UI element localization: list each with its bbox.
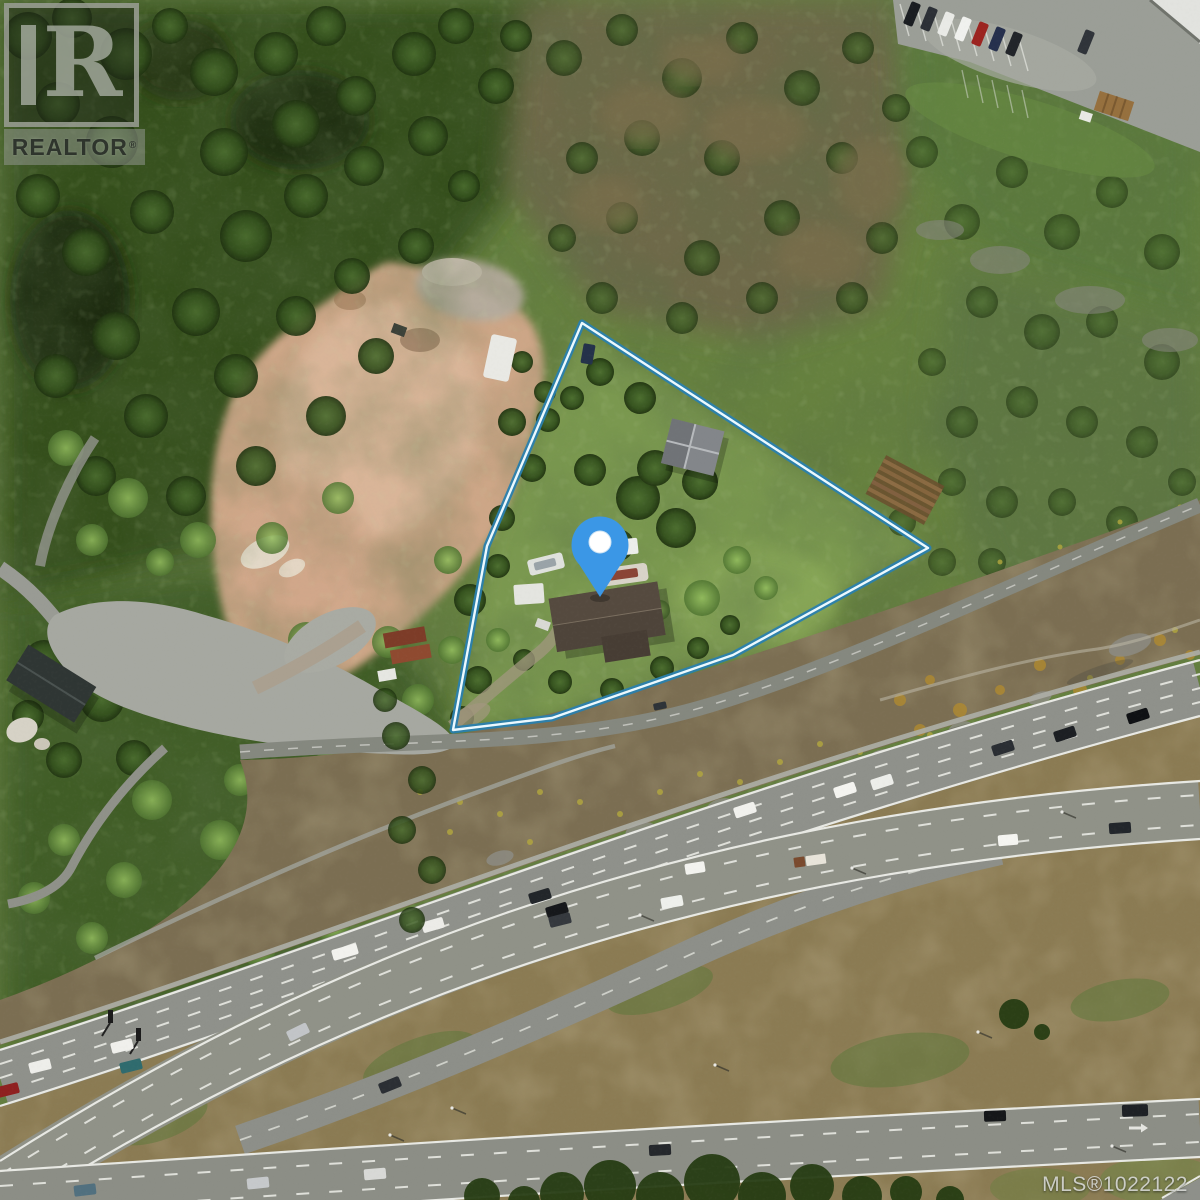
- registered-trademark-symbol: ®: [129, 140, 137, 151]
- realtor-wordmark-text: REALTOR: [12, 134, 128, 161]
- aerial-photo: R REALTOR® MLS®1022122: [0, 0, 1200, 1200]
- pin-inner-dot: [589, 531, 611, 553]
- aerial-photo-canvas: [0, 0, 1200, 1200]
- mls-number: MLS®1022122: [1042, 1173, 1188, 1197]
- realtor-wordmark: REALTOR®: [4, 129, 145, 165]
- realtor-logo: R REALTOR®: [4, 3, 145, 165]
- realtor-logo-bar: [21, 25, 36, 105]
- realtor-logo-r: R: [43, 21, 123, 105]
- realtor-logo-box: R: [4, 3, 139, 127]
